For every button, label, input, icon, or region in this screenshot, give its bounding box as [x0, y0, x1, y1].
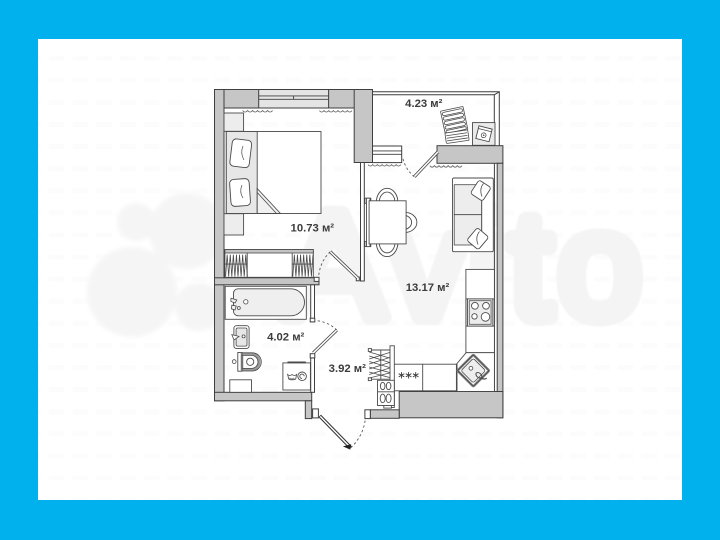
- svg-text:10.73 м²: 10.73 м²: [291, 223, 335, 235]
- svg-text:4.23 м²: 4.23 м²: [405, 98, 442, 110]
- svg-text:4.02 м²: 4.02 м²: [267, 332, 304, 344]
- svg-text:13.17 м²: 13.17 м²: [406, 282, 450, 294]
- svg-text:3.92 м²: 3.92 м²: [329, 363, 366, 375]
